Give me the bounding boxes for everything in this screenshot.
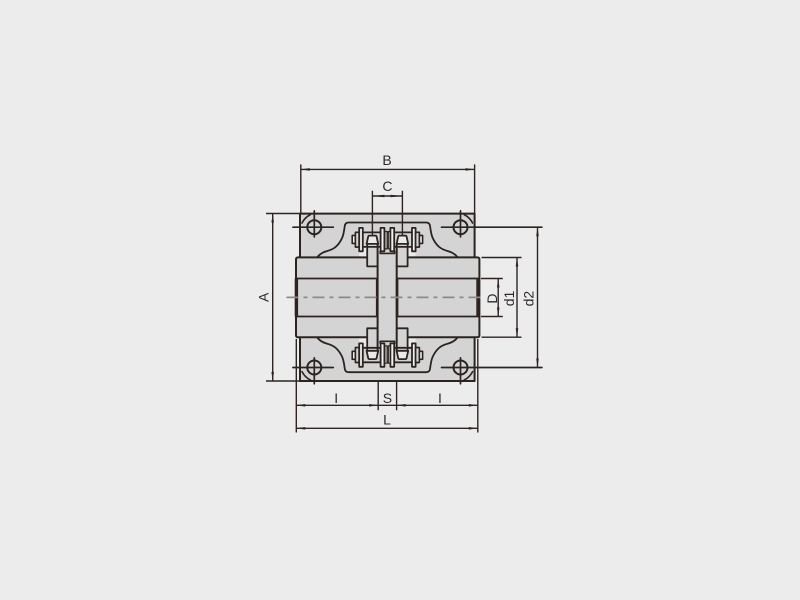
svg-text:A: A (255, 292, 271, 302)
svg-text:D: D (484, 293, 500, 303)
svg-text:L: L (383, 412, 391, 428)
svg-text:d1: d1 (501, 291, 517, 307)
svg-text:I: I (334, 390, 338, 406)
svg-text:d2: d2 (521, 291, 537, 307)
svg-text:B: B (382, 152, 391, 168)
svg-text:I: I (438, 390, 442, 406)
svg-text:S: S (383, 390, 392, 406)
svg-text:C: C (382, 178, 392, 194)
